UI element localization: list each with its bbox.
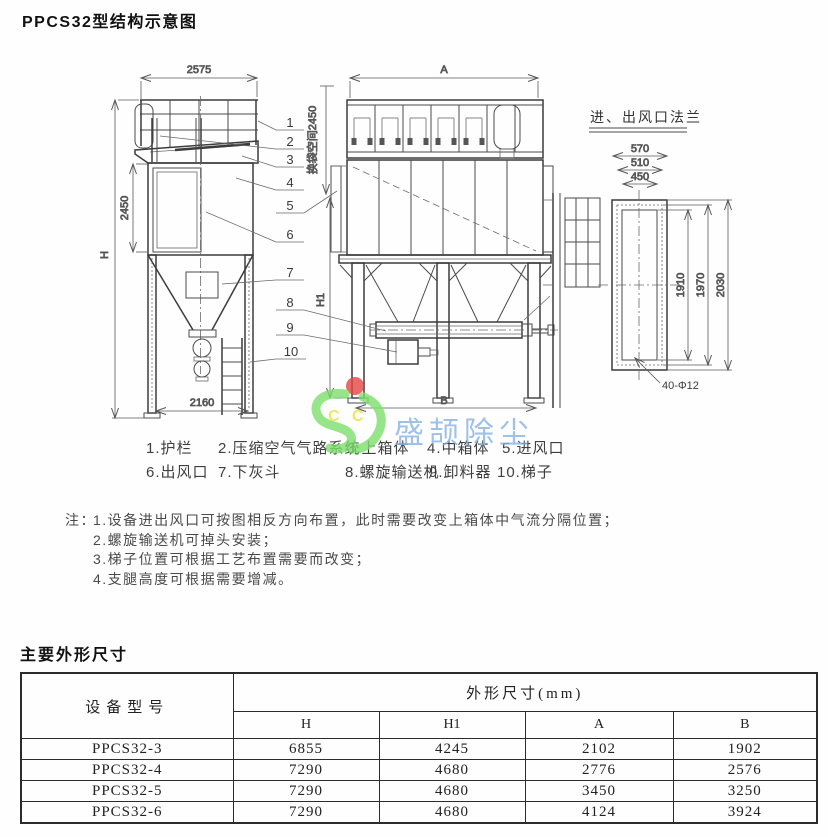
- dim-H: H: [99, 251, 111, 259]
- table-row: PPCS32-3 6855 4245 2102 1902: [21, 739, 817, 760]
- col-header-B: B: [673, 712, 817, 739]
- callout-9: 9: [286, 320, 293, 335]
- callout-6: 6: [286, 227, 293, 242]
- value-cell: 4680: [379, 781, 525, 802]
- manual-page: { "page": { "title": "PPCS32型结构示意图" }, "…: [0, 0, 828, 837]
- col-header-H: H: [233, 712, 379, 739]
- flange-detail: 进、出风口法兰 570 510 450 1910 1970: [589, 109, 732, 392]
- dim-450: 450: [631, 171, 649, 183]
- callout-8: 8: [286, 295, 293, 310]
- legend-item-5: 5.进风口: [502, 437, 565, 458]
- value-cell: 4245: [379, 739, 525, 760]
- dim-2450: 2450: [119, 196, 131, 220]
- dim-2160: 2160: [190, 397, 214, 409]
- legend-item-7: 7.下灰斗: [218, 461, 281, 482]
- dim-B: B: [440, 395, 447, 407]
- dimensions-table: 设备型号 外形尺寸(mm) H H1 A B PPCS32-3 6855 424…: [20, 672, 818, 824]
- notes-block: 注： 1.设备进出风口可按图相反方向布置，此时需要改变上箱体中气流分隔位置； 2…: [65, 511, 619, 589]
- dim-A: A: [440, 64, 448, 76]
- value-cell: 7290: [233, 781, 379, 802]
- callout-leaders: [160, 121, 397, 362]
- model-cell: PPCS32-3: [21, 739, 233, 760]
- dim-1910: 1910: [675, 273, 687, 297]
- legend-item-4: 4.中箱体: [427, 437, 490, 458]
- left-view: [135, 96, 258, 418]
- legend-item-9: 9.卸料器: [429, 461, 492, 482]
- callout-3: 3: [286, 152, 293, 167]
- dim-bolt-holes: 40-Φ12: [662, 380, 699, 392]
- value-cell: 3450: [525, 781, 673, 802]
- left-view-dimensions: 2575 H 2450 2160: [99, 64, 257, 418]
- dimensions-section-title: 主要外形尺寸: [20, 641, 128, 665]
- col-header-model: 设备型号: [21, 673, 233, 739]
- callout-7: 7: [286, 265, 293, 280]
- value-cell: 1902: [673, 739, 817, 760]
- note-line-4: 4.支腿高度可根据需要增减。: [93, 570, 619, 590]
- dim-2030: 2030: [715, 273, 727, 297]
- model-cell: PPCS32-5: [21, 781, 233, 802]
- value-cell: 7290: [233, 760, 379, 781]
- callout-2: 2: [286, 134, 293, 149]
- watermark-letter-1: C: [328, 408, 340, 425]
- model-cell: PPCS32-4: [21, 760, 233, 781]
- legend-item-10: 10.梯子: [497, 461, 553, 482]
- flange-title: 进、出风口法兰: [590, 109, 702, 125]
- table-row: PPCS32-6 7290 4680 4124 3924: [21, 802, 817, 824]
- legend-item-2: 2.压缩空气气路系统: [218, 437, 361, 458]
- col-header-A: A: [525, 712, 673, 739]
- value-cell: 6855: [233, 739, 379, 760]
- structure-diagram: 2575 H 2450 2160: [0, 0, 828, 470]
- page-title: PPCS32型结构示意图: [22, 8, 197, 32]
- note-line-2: 2.螺旋输送机可掉头安装；: [93, 531, 619, 551]
- callout-10: 10: [284, 344, 298, 359]
- watermark-dot: [346, 377, 364, 395]
- legend-item-3: 3.上箱体: [347, 437, 410, 458]
- dim-bag-space: 换袋空间2450: [305, 106, 319, 174]
- value-cell: 7290: [233, 802, 379, 824]
- front-view: [331, 100, 600, 408]
- callout-4: 4: [286, 175, 293, 190]
- col-header-H1: H1: [379, 712, 525, 739]
- table-row: PPCS32-4 7290 4680 2776 2576: [21, 760, 817, 781]
- model-cell: PPCS32-6: [21, 802, 233, 824]
- callout-5: 5: [286, 198, 293, 213]
- note-line-3: 3.梯子位置可根据工艺布置需要而改变；: [93, 550, 619, 570]
- value-cell: 2102: [525, 739, 673, 760]
- note-line-1: 1.设备进出风口可按图相反方向布置，此时需要改变上箱体中气流分隔位置；: [93, 511, 619, 531]
- dim-510: 510: [631, 157, 649, 169]
- watermark-letter-2: C: [352, 408, 364, 425]
- legend-item-1: 1.护栏: [146, 437, 193, 458]
- dim-H1: H1: [315, 293, 327, 307]
- value-cell: 3924: [673, 802, 817, 824]
- legend-item-6: 6.出风口: [146, 461, 209, 482]
- legend-item-8: 8.螺旋输送机: [345, 461, 440, 482]
- front-view-dimensions: A 换袋空间2450 H1 B: [305, 64, 538, 408]
- callout-numbers: 1 2 3 4 5 6 7 8 9 10: [284, 115, 298, 359]
- value-cell: 4124: [525, 802, 673, 824]
- callout-1: 1: [286, 115, 293, 130]
- value-cell: 4680: [379, 760, 525, 781]
- value-cell: 2576: [673, 760, 817, 781]
- dim-2575: 2575: [187, 64, 211, 76]
- table-row: PPCS32-5 7290 4680 3450 3250: [21, 781, 817, 802]
- value-cell: 3250: [673, 781, 817, 802]
- col-header-group: 外形尺寸(mm): [233, 673, 817, 712]
- dim-1970: 1970: [695, 273, 707, 297]
- dim-570: 570: [631, 143, 649, 155]
- value-cell: 2776: [525, 760, 673, 781]
- value-cell: 4680: [379, 802, 525, 824]
- notes-prefix: 注：: [65, 511, 93, 531]
